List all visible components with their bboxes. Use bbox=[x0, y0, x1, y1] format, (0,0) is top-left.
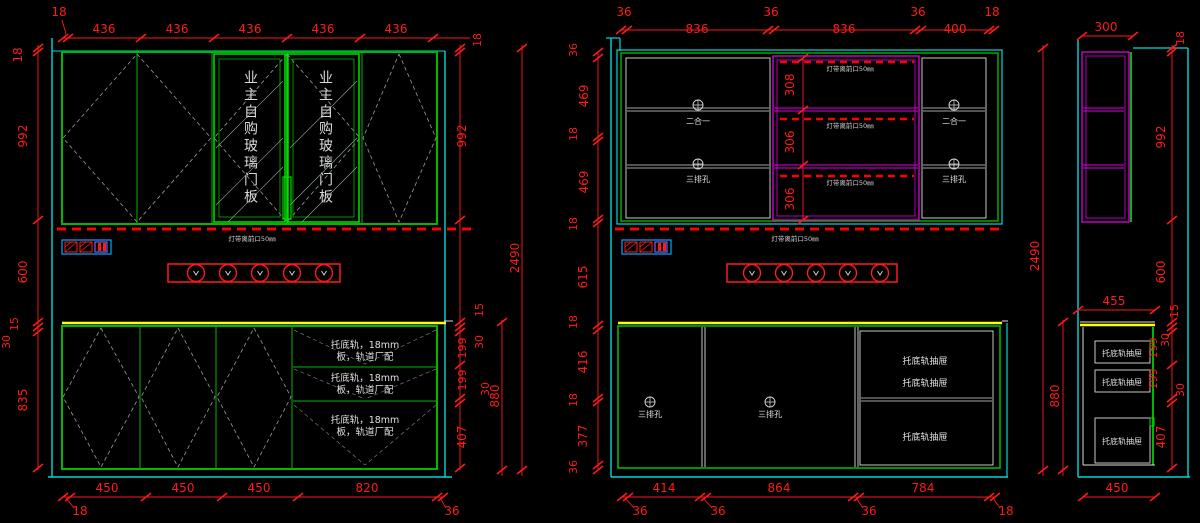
dim-label: 199 bbox=[1147, 338, 1160, 359]
dim-label: 18 bbox=[998, 504, 1013, 518]
connector-icon bbox=[765, 397, 775, 407]
dim-label: 450 bbox=[1106, 481, 1129, 495]
dim-label: 836 bbox=[686, 22, 709, 36]
hook-rail bbox=[727, 264, 897, 282]
dim-label: 15 bbox=[1168, 304, 1181, 318]
middle-elevation: 二合一 三排孔 灯带离前口50㎜ 灯带离前口50㎜ 灯带离前口50㎜ 308 bbox=[567, 5, 1014, 518]
hook-icon bbox=[744, 265, 761, 282]
hook-icon bbox=[872, 265, 889, 282]
hook-icon bbox=[808, 265, 825, 282]
lower-cabinet: 托底轨，18mm 板，轨道厂配 托底轨，18mm 板，轨道厂配 托底轨，18mm… bbox=[62, 321, 453, 469]
connector-icon bbox=[949, 100, 959, 110]
drawer-label: 托底轨抽屉 bbox=[902, 377, 947, 389]
dim-label: 199 bbox=[456, 370, 469, 391]
drawer-label: 托底轨抽屉 bbox=[1102, 377, 1142, 387]
dim-label: 36 bbox=[567, 460, 580, 474]
glass-door-text: 业主自购玻璃门板 bbox=[317, 70, 333, 206]
dim-label: 36 bbox=[763, 5, 778, 19]
dim-label: 469 bbox=[577, 171, 591, 194]
dim-label: 615 bbox=[576, 266, 590, 289]
right-section: 托底轨抽屉 托底轨抽屉 托底轨抽屉 300 18 992 600 15 30 1… bbox=[1028, 20, 1190, 501]
dim-label: 377 bbox=[576, 425, 590, 448]
dim-label: 784 bbox=[912, 481, 935, 495]
drawer-label: 托底轨，18mm bbox=[331, 414, 400, 426]
dim-label: 308 bbox=[783, 74, 797, 97]
dim-label: 306 bbox=[783, 188, 797, 211]
dim-label: 600 bbox=[16, 261, 30, 284]
glass-door-left[interactable]: 业主自购玻璃门板 bbox=[214, 54, 285, 222]
cad-drawing-stage: 业主自购玻璃门板 业主自购玻璃门板 灯带离前口50㎜ bbox=[0, 0, 1200, 523]
connector-icon bbox=[949, 159, 959, 169]
dim-label: 18 bbox=[567, 127, 580, 141]
led-label: 灯带离前口50㎜ bbox=[826, 178, 874, 187]
dim-label: 18 bbox=[51, 5, 66, 19]
dim-label: 407 bbox=[455, 426, 469, 449]
dim-label: 407 bbox=[1154, 426, 1168, 449]
dim-label: 18 bbox=[567, 393, 580, 407]
led-column: 灯带离前口50㎜ 灯带离前口50㎜ 灯带离前口50㎜ 308 306 306 bbox=[773, 54, 919, 224]
dim-label: 436 bbox=[93, 22, 116, 36]
hook-icon bbox=[252, 265, 269, 282]
dim-label: 199 bbox=[1147, 369, 1160, 390]
connector-icon bbox=[693, 159, 703, 169]
drawer-stack[interactable]: 托底轨抽屉 托底轨抽屉 托底轨抽屉 bbox=[902, 355, 947, 443]
dim-label: 36 bbox=[616, 5, 631, 19]
dim-label: 36 bbox=[444, 504, 459, 518]
wall-outline bbox=[1078, 40, 1190, 477]
fitting-label: 二合一 bbox=[686, 116, 710, 126]
hook-icon bbox=[840, 265, 857, 282]
material-legend bbox=[622, 240, 671, 254]
dim-label: 18 bbox=[11, 47, 25, 62]
dim-label: 400 bbox=[944, 22, 967, 36]
dim-label: 450 bbox=[248, 481, 271, 495]
dim-label: 36 bbox=[910, 5, 925, 19]
dim-label: 306 bbox=[783, 131, 797, 154]
dim-label: 600 bbox=[1154, 261, 1168, 284]
wall-outline bbox=[606, 38, 1008, 477]
drawer-1[interactable]: 托底轨，18mm 板，轨道厂配 bbox=[331, 339, 400, 363]
dim-label: 18 bbox=[567, 315, 580, 329]
upper-cabinet-section bbox=[1082, 52, 1131, 222]
dim-label: 2490 bbox=[508, 243, 522, 274]
drawer-3[interactable]: 托底轨，18mm 板，轨道厂配 bbox=[331, 414, 400, 438]
dim-label: 864 bbox=[768, 481, 791, 495]
dim-label: 30 bbox=[473, 335, 486, 349]
dim-label: 455 bbox=[1103, 294, 1126, 308]
dim-label: 300 bbox=[1095, 20, 1118, 34]
led-label: 灯带离前口50㎜ bbox=[826, 64, 874, 73]
dim-label: 15 bbox=[473, 303, 486, 317]
glass-door-text: 业主自购玻璃门板 bbox=[242, 70, 258, 206]
dim-label: 2490 bbox=[1028, 241, 1042, 272]
upper-cabinet: 二合一 三排孔 灯带离前口50㎜ 灯带离前口50㎜ 灯带离前口50㎜ 308 bbox=[617, 50, 1002, 224]
drawer-label: 托底轨，18mm bbox=[331, 339, 400, 351]
drawer-label: 托底轨抽屉 bbox=[1102, 436, 1142, 446]
connector-icon bbox=[693, 100, 703, 110]
led-strip: 灯带离前口50㎜ bbox=[615, 229, 1002, 243]
lower-cabinet: 三排孔 三排孔 托底轨抽屉 托底轨抽屉 托底轨抽屉 bbox=[618, 321, 1008, 468]
right-dimensions: 300 18 992 600 15 30 199 199 30 407 2490… bbox=[1028, 20, 1187, 501]
hook-icon bbox=[284, 265, 301, 282]
glass-door-right[interactable]: 业主自购玻璃门板 bbox=[288, 54, 359, 222]
hook-icon bbox=[776, 265, 793, 282]
hook-icon bbox=[316, 265, 333, 282]
drawer-label: 板，轨道厂配 bbox=[336, 384, 394, 396]
dim-label: 469 bbox=[577, 85, 591, 108]
dim-label: 436 bbox=[312, 22, 335, 36]
dim-label: 30 bbox=[0, 335, 13, 349]
dim-label: 880 bbox=[488, 385, 502, 408]
dim-label: 436 bbox=[166, 22, 189, 36]
fitting-label: 三排孔 bbox=[942, 174, 966, 184]
dim-label: 880 bbox=[1048, 385, 1062, 408]
dim-label: 835 bbox=[16, 389, 30, 412]
dim-label: 414 bbox=[653, 481, 676, 495]
led-label: 灯带离前口50㎜ bbox=[826, 121, 874, 130]
connector-icon bbox=[645, 397, 655, 407]
dim-label: 436 bbox=[239, 22, 262, 36]
drawer-2[interactable]: 托底轨，18mm 板，轨道厂配 bbox=[331, 372, 400, 396]
dim-label: 199 bbox=[456, 338, 469, 359]
material-legend bbox=[62, 240, 111, 254]
dim-label: 18 bbox=[984, 5, 999, 19]
dim-label: 450 bbox=[96, 481, 119, 495]
fitting-label: 三排孔 bbox=[758, 409, 782, 419]
led-strip: 灯带离前口50㎜ bbox=[57, 229, 472, 243]
dim-label: 18 bbox=[72, 504, 87, 518]
dim-label: 18 bbox=[567, 217, 580, 231]
led-label: 灯带离前口50㎜ bbox=[771, 234, 819, 243]
left-elevation: 业主自购玻璃门板 业主自购玻璃门板 灯带离前口50㎜ bbox=[0, 5, 527, 518]
dim-label: 992 bbox=[1154, 126, 1168, 149]
drawer-label: 板，轨道厂配 bbox=[336, 426, 394, 438]
left-dimensions: 18 436 436 436 436 436 18 992 600 15 30 … bbox=[0, 5, 527, 518]
dim-label: 36 bbox=[710, 504, 725, 518]
dim-label: 15 bbox=[8, 317, 21, 331]
dim-label: 36 bbox=[861, 504, 876, 518]
dim-label: 836 bbox=[833, 22, 856, 36]
dim-label: 992 bbox=[16, 125, 30, 148]
dim-label: 30 bbox=[1174, 383, 1187, 397]
fitting-label: 二合一 bbox=[942, 116, 966, 126]
dim-label: 436 bbox=[385, 22, 408, 36]
dim-label: 450 bbox=[172, 481, 195, 495]
dim-label: 992 bbox=[455, 125, 469, 148]
drawer-label: 托底轨抽屉 bbox=[902, 355, 947, 367]
drawer-label: 板，轨道厂配 bbox=[336, 351, 394, 363]
hook-rail bbox=[168, 264, 340, 282]
dim-label: 36 bbox=[567, 43, 580, 57]
led-label: 灯带离前口50㎜ bbox=[228, 234, 276, 243]
hook-icon bbox=[188, 265, 205, 282]
hook-icon bbox=[220, 265, 237, 282]
drawer-label: 托底轨抽屉 bbox=[902, 431, 947, 443]
lower-cabinet-section: 托底轨抽屉 托底轨抽屉 托底轨抽屉 bbox=[1080, 322, 1155, 465]
cad-canvas[interactable]: 业主自购玻璃门板 业主自购玻璃门板 灯带离前口50㎜ bbox=[0, 0, 1200, 523]
dim-label: 416 bbox=[576, 351, 590, 374]
dim-label: 30 bbox=[1159, 333, 1172, 347]
drawer-label: 托底轨，18mm bbox=[331, 372, 400, 384]
dim-label: 36 bbox=[632, 504, 647, 518]
fitting-label: 三排孔 bbox=[638, 409, 662, 419]
dim-label: 18 bbox=[471, 33, 484, 47]
fitting-label: 三排孔 bbox=[686, 174, 710, 184]
dim-label: 820 bbox=[356, 481, 379, 495]
dim-label: 18 bbox=[1174, 31, 1187, 45]
drawer-label: 托底轨抽屉 bbox=[1102, 348, 1142, 358]
